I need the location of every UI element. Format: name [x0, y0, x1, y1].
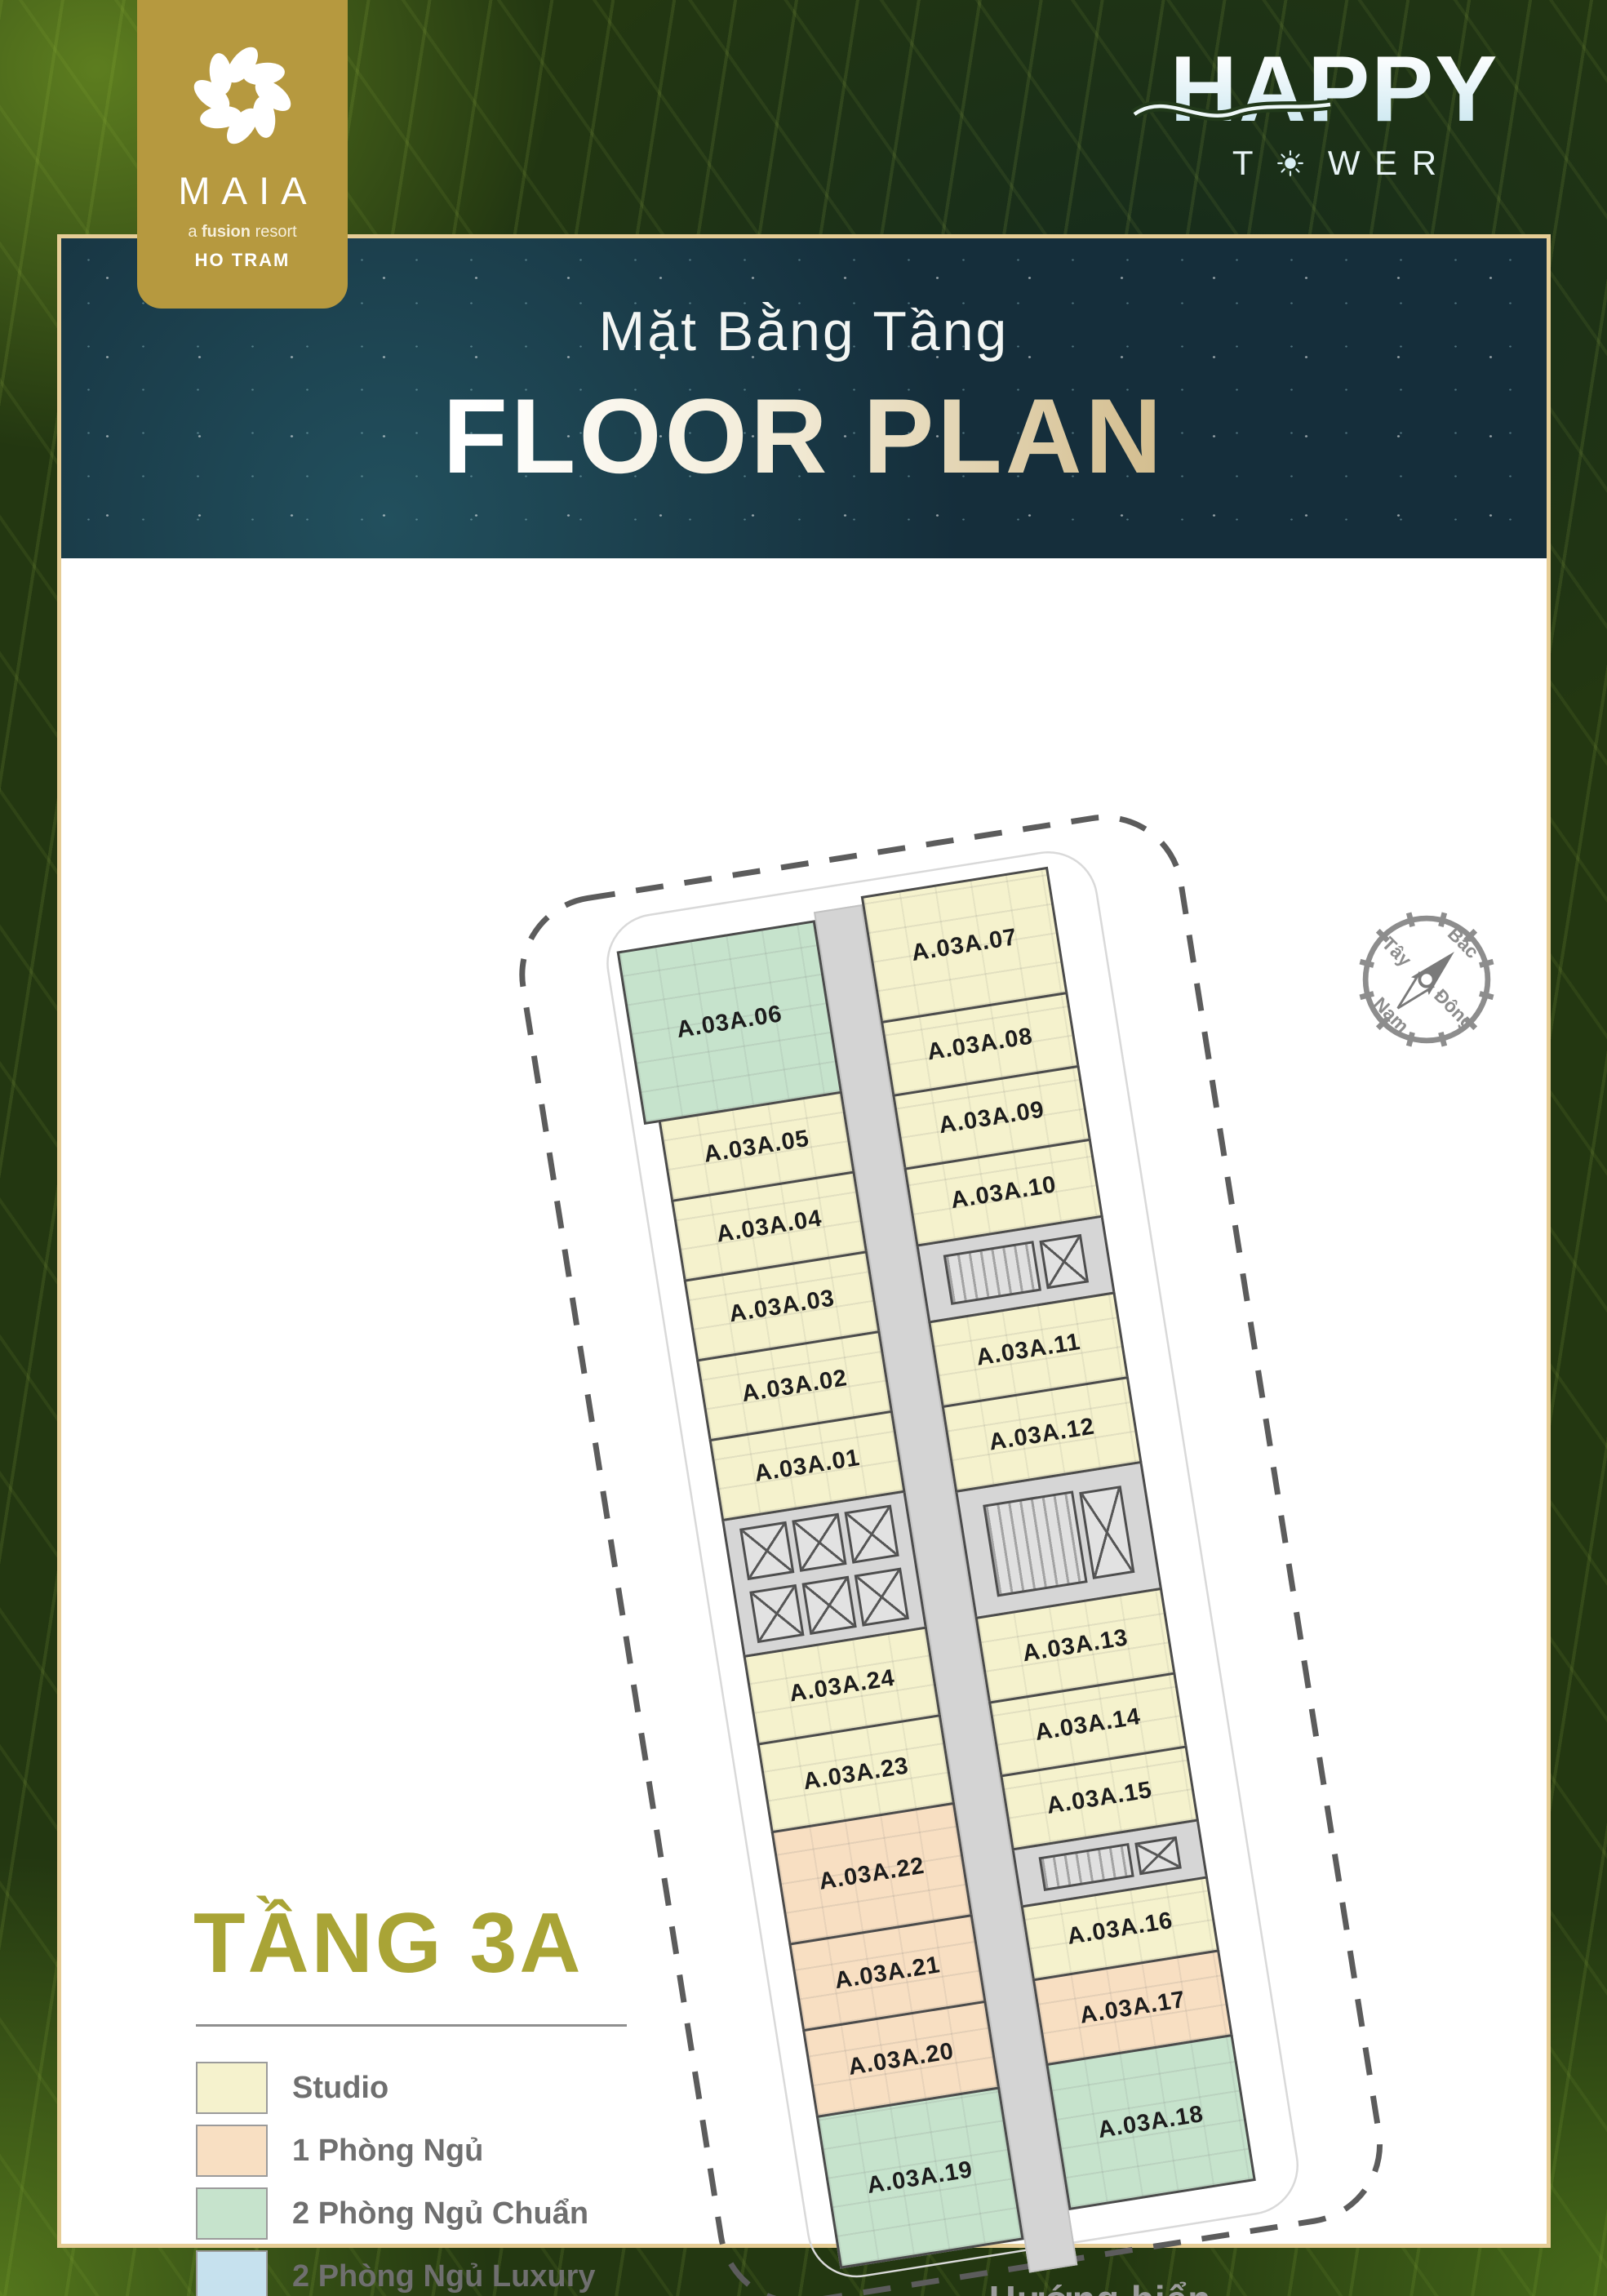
maia-wordmark: MAIA — [166, 168, 317, 213]
legend-divider — [196, 2024, 627, 2027]
floor-plan: A.03A.06A.03A.05A.03A.04A.03A.03A.03A.02… — [628, 867, 1265, 2296]
legend-item: 1 Phòng Ngủ — [196, 2125, 596, 2177]
maia-location: HO TRAM — [195, 250, 291, 271]
banner-subtitle: Mặt Bằng Tầng — [599, 300, 1010, 363]
legend-label: 2 Phòng Ngủ Luxury — [292, 2259, 596, 2294]
maia-tagline: a fusion resort — [188, 223, 296, 242]
unit-label: A.03A.02 — [740, 1365, 850, 1408]
unit-label: A.03A.23 — [801, 1752, 911, 1796]
unit-label: A.03A.01 — [752, 1444, 862, 1487]
unit-label: A.03A.09 — [937, 1096, 1046, 1139]
unit-label: A.03A.11 — [974, 1328, 1082, 1371]
legend-label: Studio — [292, 2071, 388, 2106]
unit-label: A.03A.13 — [1021, 1624, 1130, 1668]
sea-direction-label: Hướng biển — [896, 2277, 1304, 2296]
elevator-shaft — [749, 1584, 804, 1643]
legend-label: 2 Phòng Ngủ Chuẩn — [292, 2196, 588, 2232]
legend-swatch — [196, 2125, 268, 2177]
unit-label: A.03A.03 — [727, 1285, 837, 1328]
legend-swatch — [196, 2187, 268, 2240]
stairs — [943, 1241, 1041, 1305]
legend-swatch — [196, 2250, 268, 2296]
unit-label: A.03A.19 — [865, 2156, 974, 2200]
tower-wordmark: T WER — [1126, 144, 1543, 183]
unit-label: A.03A.07 — [910, 923, 1019, 966]
compass-icon: Bắc Đông Nam Tây — [1348, 901, 1505, 1058]
legend-item: 2 Phòng Ngủ Luxury — [196, 2250, 596, 2296]
unit-label: A.03A.24 — [788, 1664, 897, 1708]
legend-item: Studio — [196, 2062, 596, 2114]
elevator-shaft — [802, 1576, 857, 1635]
stairs — [1038, 1843, 1134, 1892]
unit-label: A.03A.04 — [715, 1205, 824, 1248]
unit-label: A.03A.08 — [926, 1023, 1035, 1066]
stairs — [983, 1491, 1087, 1597]
maia-flower-icon — [181, 34, 304, 157]
elevator-shaft — [1134, 1836, 1182, 1876]
unit-A.03A.19: A.03A.19 — [816, 2086, 1024, 2268]
banner-title: FLOOR PLAN — [443, 375, 1165, 497]
elevator-shaft — [1079, 1486, 1134, 1579]
unit-label: A.03A.15 — [1045, 1776, 1154, 1819]
poster-background: Mặt Bằng Tầng FLOOR PLAN A.03A.06A.03A.0… — [0, 0, 1607, 2296]
unit-A.03A.18: A.03A.18 — [1045, 2034, 1256, 2210]
unit-label: A.03A.14 — [1033, 1703, 1143, 1747]
unit-label: A.03A.10 — [949, 1171, 1059, 1215]
elevator-shaft — [844, 1504, 899, 1563]
unit-label: A.03A.05 — [702, 1125, 811, 1168]
unit-label: A.03A.16 — [1065, 1907, 1174, 1950]
elevator-shaft — [1039, 1234, 1089, 1289]
unit-A.03A.06: A.03A.06 — [617, 920, 843, 1125]
elevator-shaft — [739, 1521, 794, 1580]
sun-icon — [1276, 149, 1305, 178]
unit-label: A.03A.22 — [817, 1852, 926, 1895]
unit-label: A.03A.12 — [988, 1413, 1097, 1456]
unit-label: A.03A.21 — [832, 1952, 942, 1995]
legend: Studio1 Phòng Ngủ2 Phòng Ngủ Chuẩn2 Phòn… — [196, 2062, 596, 2296]
unit-label: A.03A.18 — [1096, 2100, 1205, 2143]
unit-label: A.03A.06 — [675, 1001, 784, 1044]
maia-brand-badge: MAIA a fusion resort HO TRAM — [137, 0, 348, 309]
elevator-shaft — [855, 1568, 909, 1627]
floor-heading: TẦNG 3A — [193, 1895, 583, 1992]
happy-wordmark: HAPPY — [1126, 41, 1543, 139]
floor-plan-card: Mặt Bằng Tầng FLOOR PLAN A.03A.06A.03A.0… — [57, 234, 1551, 2248]
unit-label: A.03A.17 — [1078, 1986, 1187, 2029]
legend-label: 1 Phòng Ngủ — [292, 2134, 483, 2169]
legend-swatch — [196, 2062, 268, 2114]
unit-label: A.03A.20 — [846, 2037, 956, 2081]
elevator-shaft — [792, 1512, 846, 1571]
legend-item: 2 Phòng Ngủ Chuẩn — [196, 2187, 596, 2240]
happy-tower-logo: HAPPY T WER — [1126, 41, 1543, 183]
